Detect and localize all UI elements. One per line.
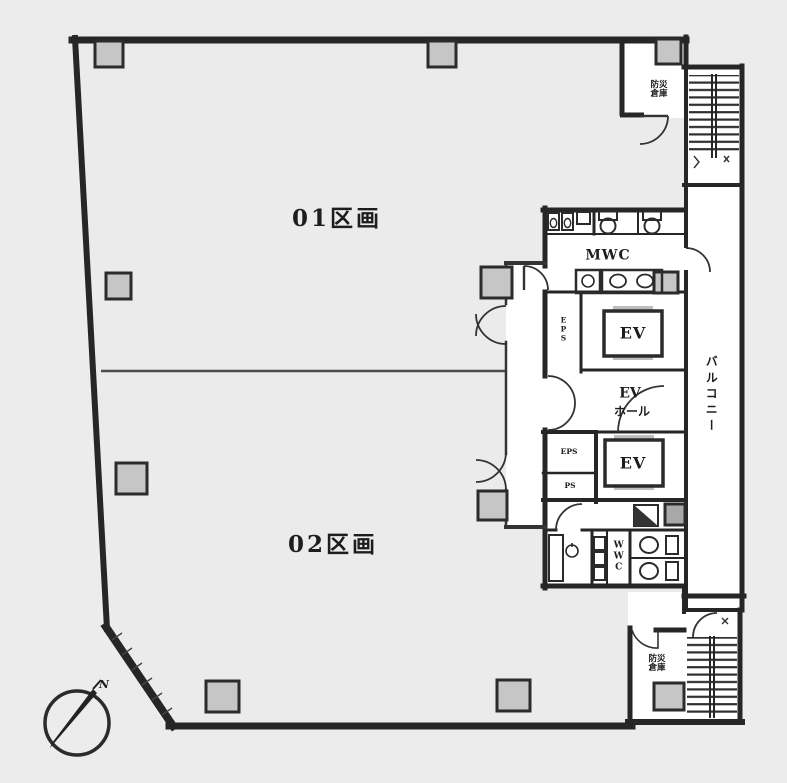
label-storage-top-line2: 倉庫	[650, 90, 667, 99]
floor-plan-drawing	[0, 0, 787, 783]
label-storage-bottom: 防災 倉庫	[648, 655, 665, 673]
label-north: N	[99, 679, 109, 691]
label-wwc: WWC	[613, 541, 622, 574]
compass-north-arrow	[45, 680, 109, 755]
floor-plan-canvas: 01区画 02区画 MWC EV EV ホール EV バルコニー 防災 倉庫 防…	[0, 0, 787, 783]
label-ev-lower: EV	[620, 456, 647, 473]
label-storage-top: 防災 倉庫	[650, 81, 667, 99]
label-storage-bottom-line2: 倉庫	[648, 664, 665, 673]
label-ps: PS	[564, 482, 575, 490]
label-mwc: MWC	[585, 249, 630, 264]
label-ev-upper: EV	[620, 326, 647, 343]
label-unit-01: 01区画	[292, 207, 382, 231]
label-ev-hall-2: ホール	[614, 406, 650, 419]
label-balcony: バルコニー	[705, 355, 718, 435]
label-ev-hall-1: EV	[619, 387, 641, 402]
label-duct-shaft: EPS	[559, 316, 567, 343]
label-eps: EPS	[561, 448, 578, 456]
label-unit-02: 02区画	[288, 533, 378, 557]
